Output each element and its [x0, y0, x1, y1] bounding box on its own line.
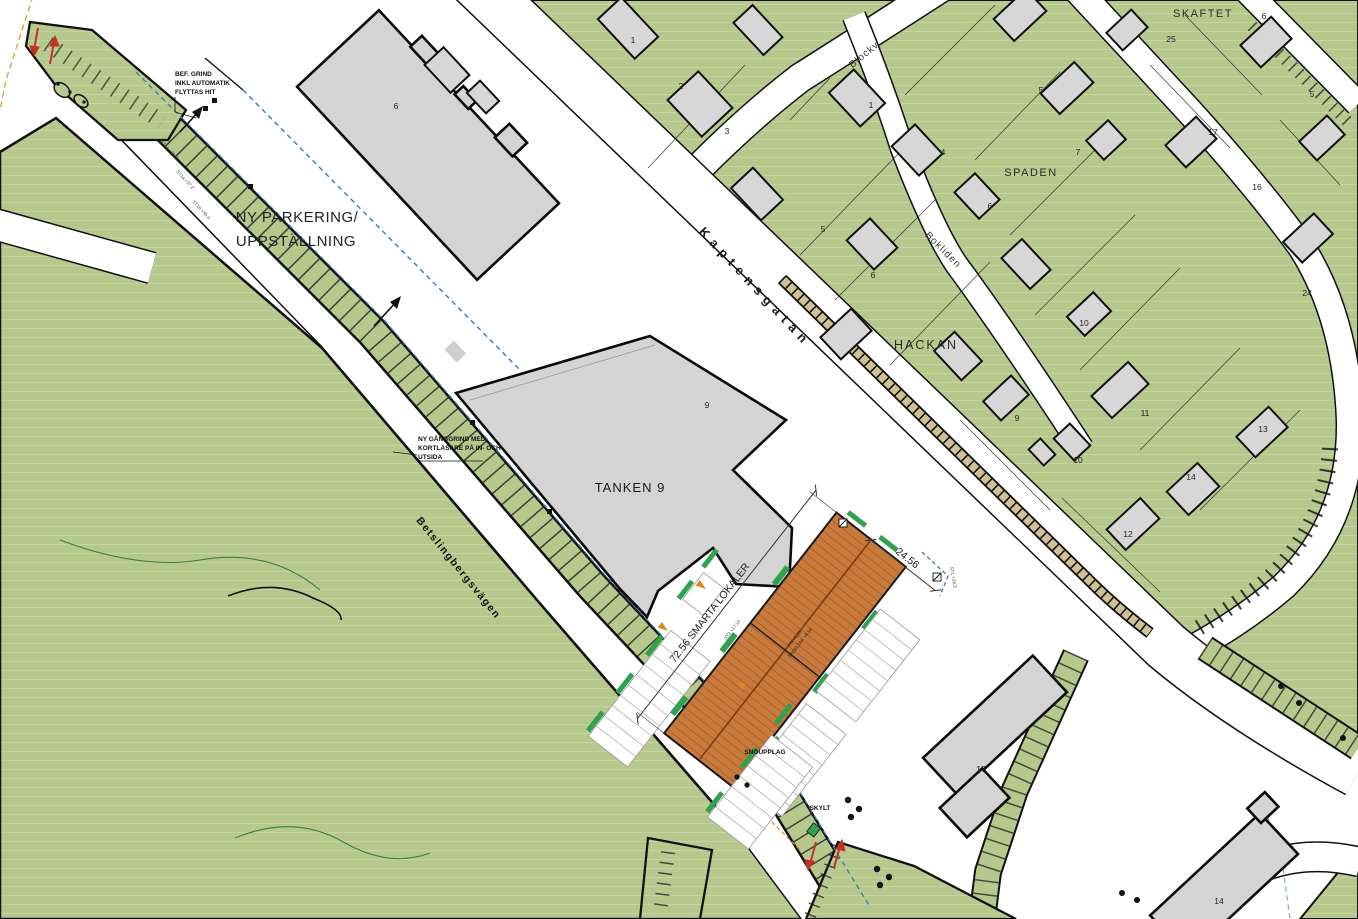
svg-text:24: 24: [1302, 288, 1312, 298]
svg-text:17: 17: [1208, 127, 1218, 137]
svg-text:2: 2: [679, 81, 684, 91]
note-snow: SNÖUPPLAG: [744, 747, 785, 756]
svg-text:5: 5: [1310, 89, 1315, 99]
svg-text:10: 10: [1079, 318, 1089, 328]
svg-text:1: 1: [631, 35, 636, 45]
area-label-tanken: TANKEN 9: [595, 480, 666, 495]
svg-text:4: 4: [941, 147, 946, 157]
svg-text:5: 5: [1039, 85, 1044, 95]
traffic-island-south: [640, 838, 712, 919]
svg-text:7: 7: [1076, 147, 1081, 157]
site-plan-canvas: FG +6,25 SADELTAK +8,50 72.56 SMARTA LOK…: [0, 0, 1358, 919]
survey-tag-3: ST1 +26,3: [949, 566, 958, 588]
svg-text:13: 13: [1258, 424, 1268, 434]
note-gate-new-3: UTSIDA: [418, 454, 443, 461]
svg-text:9: 9: [1015, 413, 1020, 423]
yard-arrow: [374, 296, 401, 326]
svg-text:14: 14: [1186, 472, 1196, 482]
note-sign: SKYLT: [810, 805, 831, 812]
svg-text:16: 16: [1252, 182, 1262, 192]
svg-text:5: 5: [821, 224, 826, 234]
svg-text:6: 6: [988, 201, 993, 211]
note-gate-existing-1: BEF. GRIND: [175, 71, 212, 78]
svg-text:9: 9: [705, 400, 710, 410]
block-label-hackan: HACKAN: [894, 338, 958, 352]
note-gate-new-1: NY GÅNGGRIND MED: [418, 434, 486, 443]
boundary-orange-dashed: [0, 0, 33, 110]
svg-text:10: 10: [1073, 455, 1083, 465]
note-gate-existing-3: FLYTTAS HIT: [175, 89, 215, 96]
svg-text:14: 14: [1214, 896, 1224, 906]
svg-text:17: 17: [976, 764, 986, 774]
pad-gray: [444, 341, 466, 363]
note-gate-existing-2: INKL AUTOMATIK: [175, 80, 230, 87]
svg-text:3: 3: [725, 126, 730, 136]
svg-text:11: 11: [1141, 408, 1150, 418]
site-plan-svg: FG +6,25 SADELTAK +8,50 72.56 SMARTA LOK…: [0, 0, 1358, 919]
area-label-parking-1: NY PARKERING/: [236, 209, 359, 226]
svg-text:6: 6: [1262, 11, 1267, 21]
svg-text:6: 6: [871, 270, 876, 280]
svg-text:12: 12: [1123, 529, 1133, 539]
block-label-spaden: SPADEN: [1004, 167, 1057, 179]
svg-text:1: 1: [869, 100, 874, 110]
note-gate-new-2: KORTLÄSARE PÅ IN- OCH: [418, 443, 501, 452]
block-label-skaftet: SKAFTET: [1173, 8, 1233, 20]
svg-text:6: 6: [394, 101, 399, 111]
svg-text:25: 25: [1166, 34, 1176, 44]
area-label-parking-2: UPPSTÄLLNING: [236, 233, 356, 250]
